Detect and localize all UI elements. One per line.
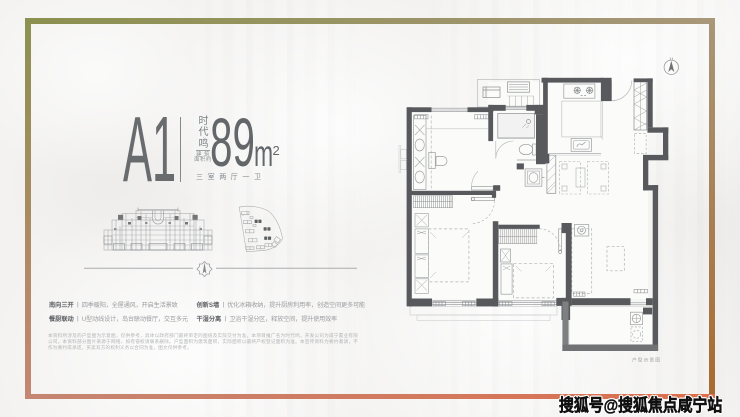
svg-text:户型示意图: 户型示意图 [632,357,661,364]
